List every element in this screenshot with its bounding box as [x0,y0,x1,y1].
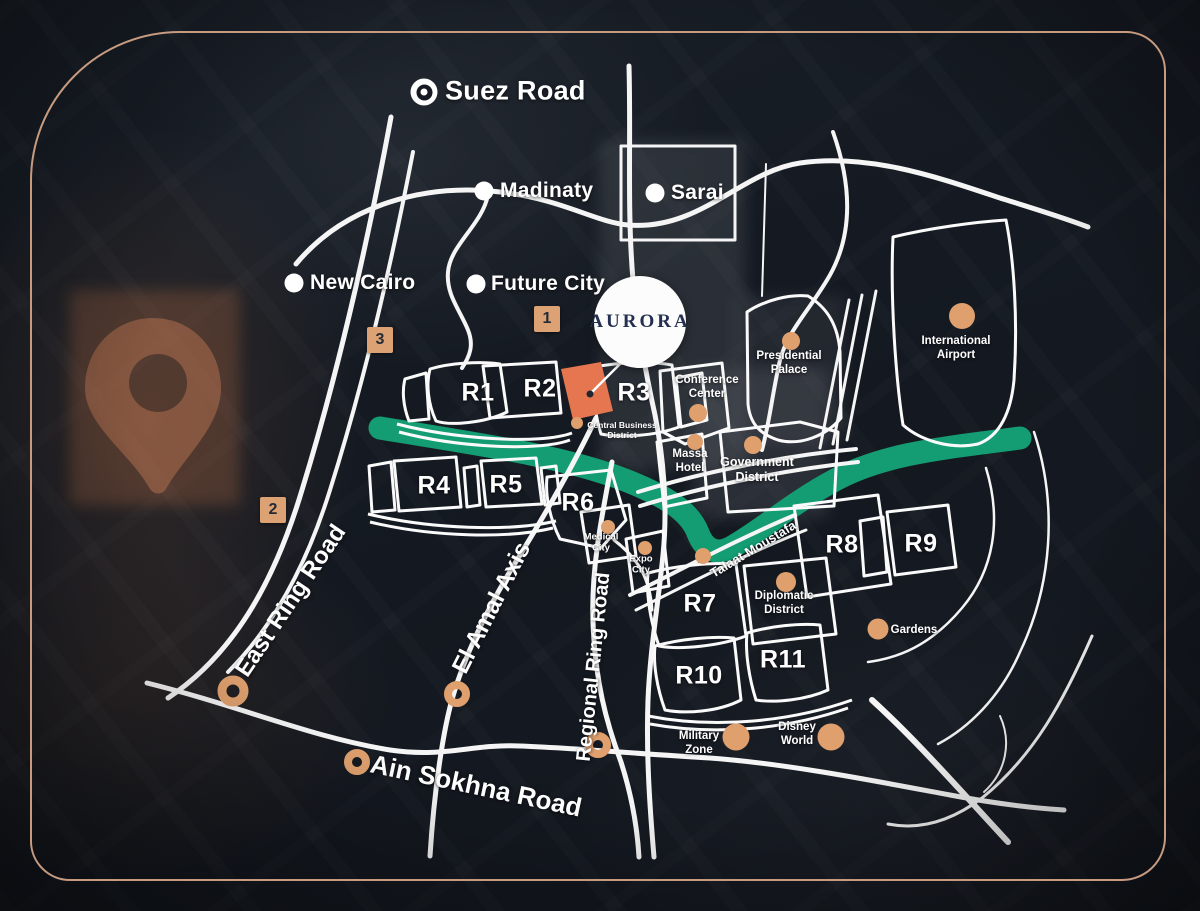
bronze-frame-border [30,31,1166,881]
